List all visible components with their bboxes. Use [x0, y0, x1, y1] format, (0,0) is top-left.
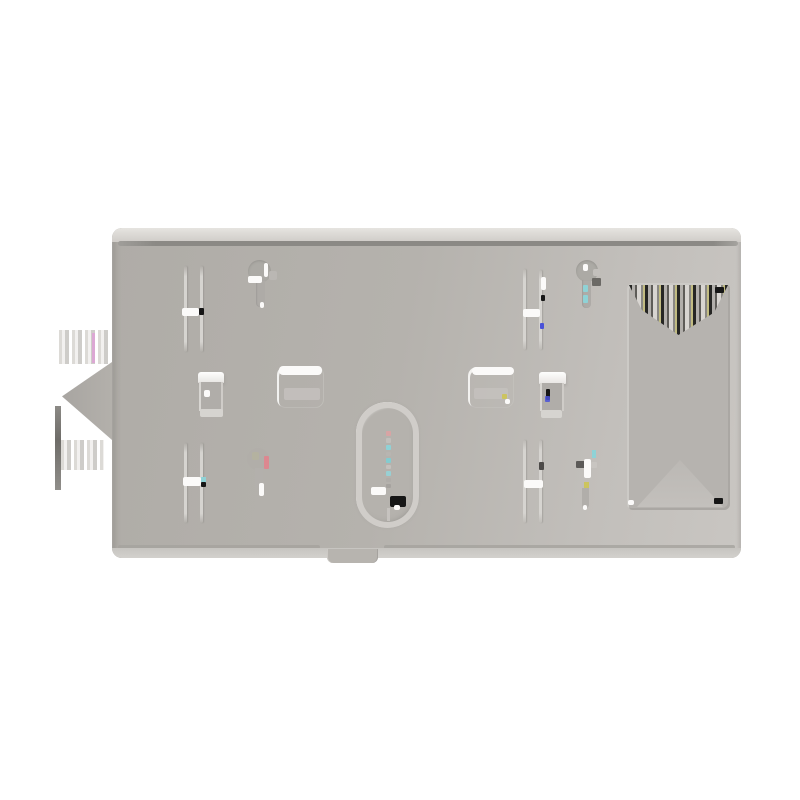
artifact-cyan-dot	[583, 295, 588, 303]
keyhole-nub	[593, 269, 600, 276]
keyhole-highlight	[259, 483, 264, 496]
oval-slot-segment	[386, 484, 391, 488]
recess-dot	[505, 399, 510, 404]
side-tab-triangle	[62, 362, 112, 440]
oval-slot-segment	[386, 445, 391, 450]
artifact-blue-dot	[540, 323, 544, 329]
oval-dot	[394, 505, 400, 510]
keyhole-dark-dash	[592, 278, 601, 286]
recess-body	[540, 383, 564, 411]
center-oval-opening	[356, 402, 419, 528]
clip-recess-wide-right	[466, 366, 514, 408]
oval-slot-segment	[386, 465, 391, 469]
clip-recess-square-right	[538, 371, 568, 417]
clip-recess-wide-left	[277, 364, 325, 408]
cutout-shadow-stripes	[629, 285, 728, 335]
keyhole-highlight	[584, 459, 591, 478]
slot-highlight	[523, 309, 540, 317]
cutout-corner-mark	[715, 287, 724, 293]
slot-highlight	[183, 477, 201, 486]
cutout-corner-dot	[628, 500, 634, 505]
plate-bottom-bevel	[112, 548, 741, 558]
screw-slot-bottom-left	[182, 442, 208, 524]
oval-slot-segment	[386, 452, 391, 456]
wire-cutout	[627, 283, 730, 510]
recess-inner-band	[284, 388, 320, 400]
slot-dot	[541, 277, 546, 290]
oval-tail-line	[387, 508, 390, 521]
keyhole-highlight	[248, 276, 262, 283]
oval-slot-segment	[386, 431, 391, 436]
left-edge-artifact-stripes-top	[56, 330, 108, 364]
oval-slot-segment	[386, 458, 391, 463]
artifact-blue-dot	[545, 396, 550, 402]
slot-dark-mark	[539, 462, 544, 470]
product-photo-canvas	[0, 0, 800, 800]
screw-slot-top-left	[182, 266, 208, 358]
slot-highlight	[524, 480, 543, 488]
keyhole-dot	[260, 302, 264, 308]
plate-top-groove	[118, 241, 738, 246]
plate-top-bevel	[112, 228, 741, 242]
oval-highlight-dash	[371, 487, 386, 495]
keyhole-highlight	[264, 263, 268, 277]
recess-bottom-edge	[200, 409, 223, 417]
left-edge-dark-bar	[55, 406, 61, 490]
keyhole-dot	[583, 264, 588, 271]
oval-slot-segment	[386, 471, 391, 476]
clip-recess-square-left	[197, 372, 225, 418]
keyhole-bottom-left	[245, 446, 279, 500]
left-edge-artifact-stripes-bottom	[58, 440, 104, 470]
artifact-cyan-dot	[592, 450, 596, 458]
artifact-cyan-dot	[583, 285, 588, 292]
slot-dark-mark	[541, 295, 545, 301]
keyhole-dot	[583, 505, 587, 510]
slot-highlight	[182, 308, 199, 316]
artifact-olive-dot	[252, 452, 259, 460]
artifact-magenta-stripe	[92, 333, 95, 363]
recess-top-edge	[279, 366, 322, 375]
recess-top-edge	[472, 367, 514, 375]
artifact-red-dash	[264, 456, 269, 469]
recess-dot	[204, 390, 210, 397]
keyhole-top-left	[246, 258, 280, 310]
mounting-plate	[112, 228, 741, 558]
screw-slot-top-right	[521, 269, 547, 359]
screw-slot-bottom-right	[521, 440, 547, 524]
slot-dark-mark	[201, 482, 206, 487]
cutout-light-triangle	[637, 460, 723, 507]
bottom-release-tab	[327, 549, 378, 563]
keyhole-nub	[269, 271, 277, 280]
cutout-corner-mark	[714, 498, 723, 504]
oval-slot-segment	[386, 478, 391, 482]
recess-bottom-edge	[541, 410, 562, 418]
oval-slot-segment	[386, 438, 391, 443]
keyhole-nub	[591, 462, 597, 468]
keyhole-top-right	[574, 258, 606, 314]
keyhole-bottom-right	[574, 448, 606, 512]
recess-body	[199, 382, 223, 411]
slot-dark-mark	[199, 308, 204, 315]
